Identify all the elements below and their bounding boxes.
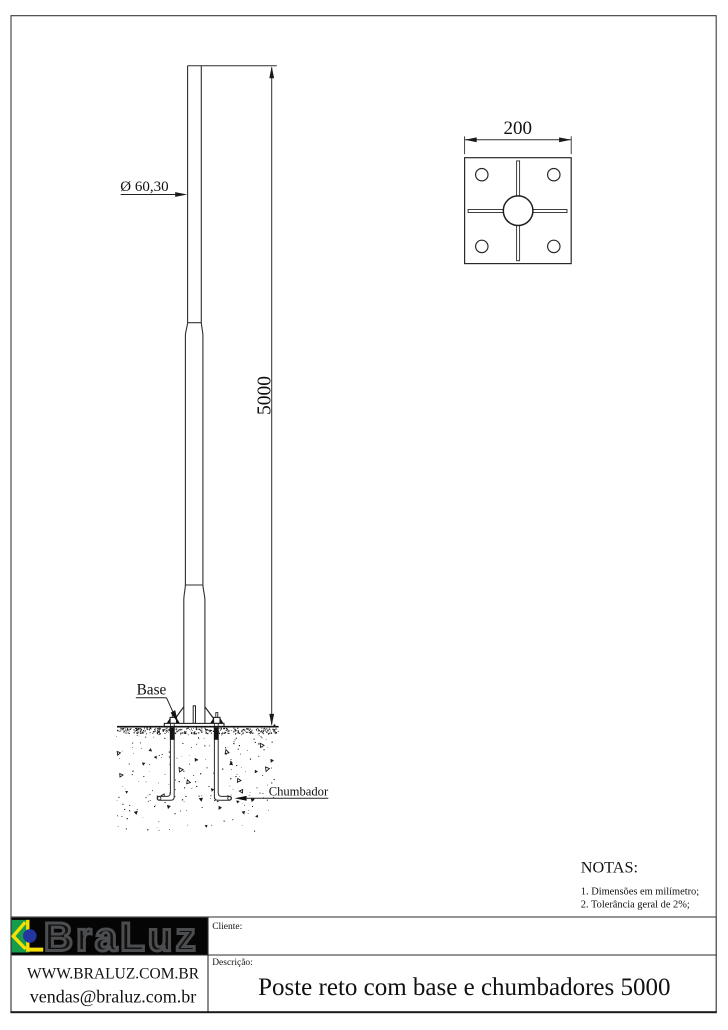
svg-text:vendas@braluz.com.br: vendas@braluz.com.br <box>30 987 197 1007</box>
svg-text:200: 200 <box>503 118 532 139</box>
svg-text:Cliente:: Cliente: <box>212 922 242 932</box>
svg-text:2. Tolerância geral de 2%;: 2. Tolerância geral de 2%; <box>581 899 690 910</box>
svg-text:Descrição:: Descrição: <box>212 958 253 968</box>
svg-text:Poste reto com base e chumbado: Poste reto com base e chumbadores 5000 <box>258 974 670 1001</box>
svg-text:NOTAS:: NOTAS: <box>581 859 638 877</box>
svg-text:1. Dimensões em milímetro;: 1. Dimensões em milímetro; <box>581 887 699 898</box>
svg-text:Ø 60,30: Ø 60,30 <box>120 179 168 195</box>
svg-text:BraLuz: BraLuz <box>44 916 199 960</box>
svg-text:WWW.BRALUZ.COM.BR: WWW.BRALUZ.COM.BR <box>27 966 200 983</box>
svg-text:Chumbador: Chumbador <box>269 785 329 799</box>
svg-text:5000: 5000 <box>255 376 276 415</box>
svg-text:Base: Base <box>137 682 167 699</box>
